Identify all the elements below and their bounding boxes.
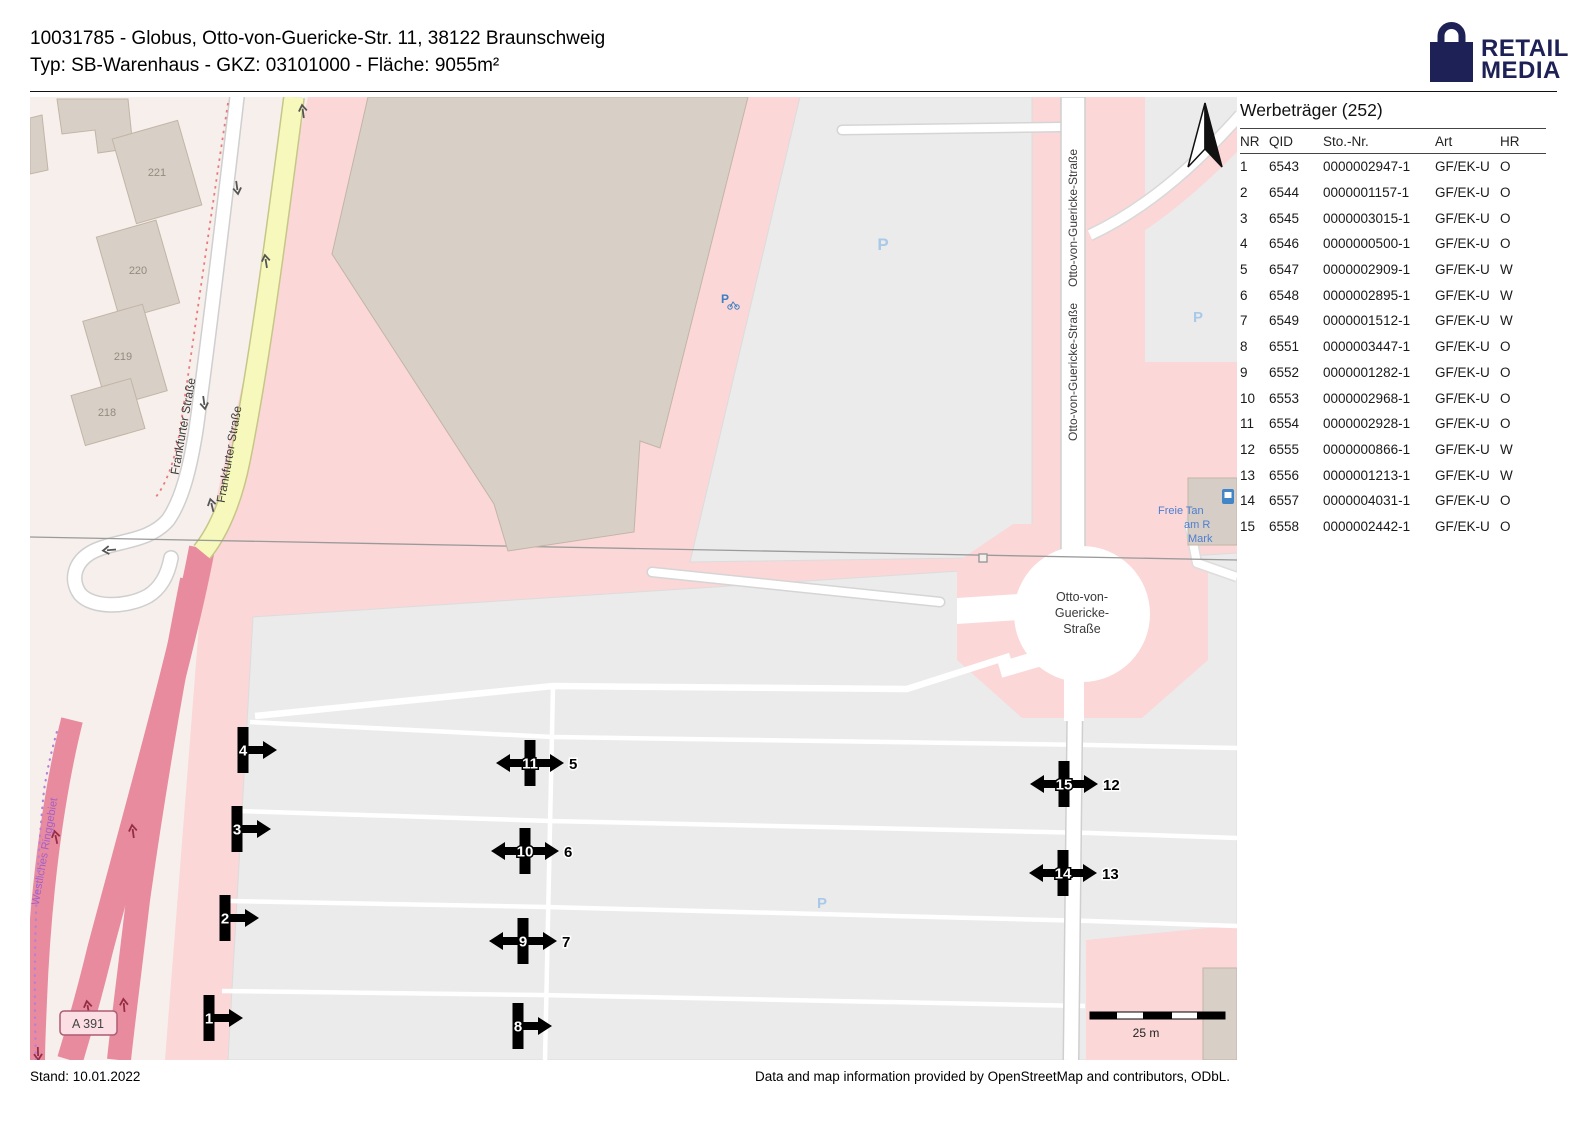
table-cell: W (1500, 257, 1546, 283)
otto-label-upper: Otto-von-Guericke-Straße (1066, 149, 1080, 287)
table-row: 1265550000000866-1GF/EK-UW (1240, 437, 1546, 463)
table-cell: 6546 (1269, 231, 1323, 257)
marker-number-secondary: 13 (1102, 866, 1119, 883)
table-cell: 0000002947-1 (1323, 154, 1435, 180)
table-cell: 6543 (1269, 154, 1323, 180)
table-cell: O (1500, 385, 1546, 411)
table-cell: O (1500, 360, 1546, 386)
table-cell: GF/EK-U (1435, 385, 1500, 411)
table-cell: 6545 (1269, 205, 1323, 231)
table-cell: 3 (1240, 205, 1269, 231)
roundabout-label-3: Straße (1063, 622, 1101, 636)
table-cell: GF/EK-U (1435, 334, 1500, 360)
table-cell: 0000003447-1 (1323, 334, 1435, 360)
table-cell: 0000001157-1 (1323, 180, 1435, 206)
table-cell: 5 (1240, 257, 1269, 283)
table-cell: O (1500, 514, 1546, 540)
table-cell: 6557 (1269, 488, 1323, 514)
marker-number: 1 (205, 1011, 213, 1028)
table-cell: 6555 (1269, 437, 1323, 463)
table-row: 1465570000004031-1GF/EK-UO (1240, 488, 1546, 514)
table-row: 465460000000500-1GF/EK-UO (1240, 231, 1546, 257)
table-cell: 0000003015-1 (1323, 205, 1435, 231)
table-cell: 10 (1240, 385, 1269, 411)
a391-label: A 391 (72, 1017, 104, 1031)
table-cell: 9 (1240, 360, 1269, 386)
building-219-label: 219 (114, 351, 132, 363)
table-cell: O (1500, 205, 1546, 231)
marker-number: 14 (1055, 866, 1072, 883)
column-header: NR (1240, 129, 1269, 154)
table-cell: 6549 (1269, 308, 1323, 334)
power-pole (979, 554, 987, 562)
map-attribution: Data and map information provided by Ope… (755, 1069, 1230, 1084)
table-row: 1165540000002928-1GF/EK-UO (1240, 411, 1546, 437)
svg-text:P: P (721, 292, 729, 306)
otto-label-lower: Otto-von-Guericke-Straße (1066, 303, 1080, 441)
table-cell: 6554 (1269, 411, 1323, 437)
table-cell: GF/EK-U (1435, 205, 1500, 231)
table-cell: W (1500, 437, 1546, 463)
scale-label: 25 m (1133, 1026, 1160, 1040)
table-cell: 0000004031-1 (1323, 488, 1435, 514)
table-row: 965520000001282-1GF/EK-UO (1240, 360, 1546, 386)
table-cell: W (1500, 462, 1546, 488)
panel-title: Werbeträger (252) (1240, 100, 1546, 129)
table-row: 1565580000002442-1GF/EK-UO (1240, 514, 1546, 540)
marker-number-secondary: 6 (564, 844, 572, 861)
werbetraeger-panel: Werbeträger (252) NRQIDSto.-Nr.ArtHR 165… (1240, 100, 1546, 539)
table-cell: GF/EK-U (1435, 257, 1500, 283)
fuel-icon (1222, 489, 1234, 504)
column-header: Sto.-Nr. (1323, 129, 1435, 154)
table-cell: 2 (1240, 180, 1269, 206)
table-cell: 0000002968-1 (1323, 385, 1435, 411)
table-cell: GF/EK-U (1435, 514, 1500, 540)
table-cell: 0000002909-1 (1323, 257, 1435, 283)
table-cell: 0000001282-1 (1323, 360, 1435, 386)
table-row: 1065530000002968-1GF/EK-UO (1240, 385, 1546, 411)
scale-bar (1090, 1012, 1225, 1019)
retail-media-logo: RETAIL MEDIA (1428, 18, 1569, 82)
table-cell: 0000000866-1 (1323, 437, 1435, 463)
roundabout-label-2: Guericke- (1055, 606, 1109, 620)
table-cell: W (1500, 308, 1546, 334)
marker-number: 10 (517, 844, 534, 861)
table-cell: 6 (1240, 282, 1269, 308)
table-cell: GF/EK-U (1435, 360, 1500, 386)
marker-number: 2 (221, 911, 229, 928)
table-cell: GF/EK-U (1435, 462, 1500, 488)
table-row: 165430000002947-1GF/EK-UO (1240, 154, 1546, 180)
table-row: 765490000001512-1GF/EK-UW (1240, 308, 1546, 334)
table-header-row: NRQIDSto.-Nr.ArtHR (1240, 129, 1546, 154)
table-cell: 7 (1240, 308, 1269, 334)
column-header: HR (1500, 129, 1546, 154)
header-title: 10031785 - Globus, Otto-von-Guericke-Str… (30, 28, 605, 50)
fuel-label-2: am R (1184, 519, 1210, 531)
parking-symbol-south: P (817, 895, 827, 912)
table-cell: O (1500, 231, 1546, 257)
table-cell: 0000002895-1 (1323, 282, 1435, 308)
table-cell: 6553 (1269, 385, 1323, 411)
otto-road-south (1071, 700, 1075, 1060)
table-cell: GF/EK-U (1435, 231, 1500, 257)
table-cell: 0000000500-1 (1323, 231, 1435, 257)
fuel-label-1: Freie Tan (1158, 505, 1204, 517)
table-cell: GF/EK-U (1435, 154, 1500, 180)
table-cell: 4 (1240, 231, 1269, 257)
table-cell: W (1500, 282, 1546, 308)
parking-symbol-north: P (877, 235, 888, 254)
logo-line-media: MEDIA (1481, 60, 1569, 82)
table-cell: O (1500, 488, 1546, 514)
table-cell: 6551 (1269, 334, 1323, 360)
table-cell: O (1500, 411, 1546, 437)
table-cell: 1 (1240, 154, 1269, 180)
table-cell: GF/EK-U (1435, 488, 1500, 514)
shopping-bag-icon (1428, 18, 1475, 82)
table-cell: 0000001213-1 (1323, 462, 1435, 488)
marker-number: 4 (239, 743, 248, 760)
marker-number: 11 (522, 756, 538, 773)
table-cell: 11 (1240, 411, 1269, 437)
marker-number: 8 (514, 1019, 522, 1036)
header-subtitle: Typ: SB-Warenhaus - GKZ: 03101000 - Fläc… (30, 55, 499, 77)
table-cell: 8 (1240, 334, 1269, 360)
table-cell: 0000001512-1 (1323, 308, 1435, 334)
marker-number-secondary: 12 (1103, 777, 1120, 794)
building-218-label: 218 (98, 407, 116, 419)
table-cell: 6558 (1269, 514, 1323, 540)
marker-number-secondary: 7 (562, 934, 570, 951)
table-row: 865510000003447-1GF/EK-UO (1240, 334, 1546, 360)
table-row: 665480000002895-1GF/EK-UW (1240, 282, 1546, 308)
building-220-label: 220 (129, 265, 147, 277)
table-cell: 13 (1240, 462, 1269, 488)
table-row: 1365560000001213-1GF/EK-UW (1240, 462, 1546, 488)
table-cell: 15 (1240, 514, 1269, 540)
table-cell: 14 (1240, 488, 1269, 514)
table-cell: 12 (1240, 437, 1269, 463)
column-header: QID (1269, 129, 1323, 154)
table-cell: GF/EK-U (1435, 411, 1500, 437)
table-cell: 6544 (1269, 180, 1323, 206)
site-map: Otto-von- Guericke- Straße A 391 Westlic… (30, 97, 1237, 1060)
table-cell: GF/EK-U (1435, 180, 1500, 206)
parking-symbol-east: P (1193, 309, 1203, 326)
top-service-road (842, 127, 1061, 130)
marker-number: 15 (1056, 777, 1073, 794)
marker-number: 3 (233, 822, 241, 839)
table-row: 565470000002909-1GF/EK-UW (1240, 257, 1546, 283)
table-cell: 6556 (1269, 462, 1323, 488)
roundabout-label-1: Otto-von- (1056, 590, 1108, 604)
table-cell: O (1500, 154, 1546, 180)
table-cell: 6548 (1269, 282, 1323, 308)
marker-number-secondary: 5 (569, 756, 577, 773)
table-cell: GF/EK-U (1435, 308, 1500, 334)
fuel-label-3: Mark (1188, 533, 1213, 545)
table-row: 265440000001157-1GF/EK-UO (1240, 180, 1546, 206)
status-date: Stand: 10.01.2022 (30, 1069, 140, 1084)
werbetraeger-table: NRQIDSto.-Nr.ArtHR 165430000002947-1GF/E… (1240, 129, 1546, 539)
table-cell: O (1500, 180, 1546, 206)
table-cell: 0000002928-1 (1323, 411, 1435, 437)
table-cell: O (1500, 334, 1546, 360)
table-cell: GF/EK-U (1435, 282, 1500, 308)
table-cell: 6547 (1269, 257, 1323, 283)
table-row: 365450000003015-1GF/EK-UO (1240, 205, 1546, 231)
marker-number: 9 (519, 934, 527, 951)
header-divider (30, 91, 1557, 92)
table-cell: 6552 (1269, 360, 1323, 386)
table-cell: 0000002442-1 (1323, 514, 1435, 540)
table-cell: GF/EK-U (1435, 437, 1500, 463)
building-221-label: 221 (148, 167, 166, 179)
column-header: Art (1435, 129, 1500, 154)
